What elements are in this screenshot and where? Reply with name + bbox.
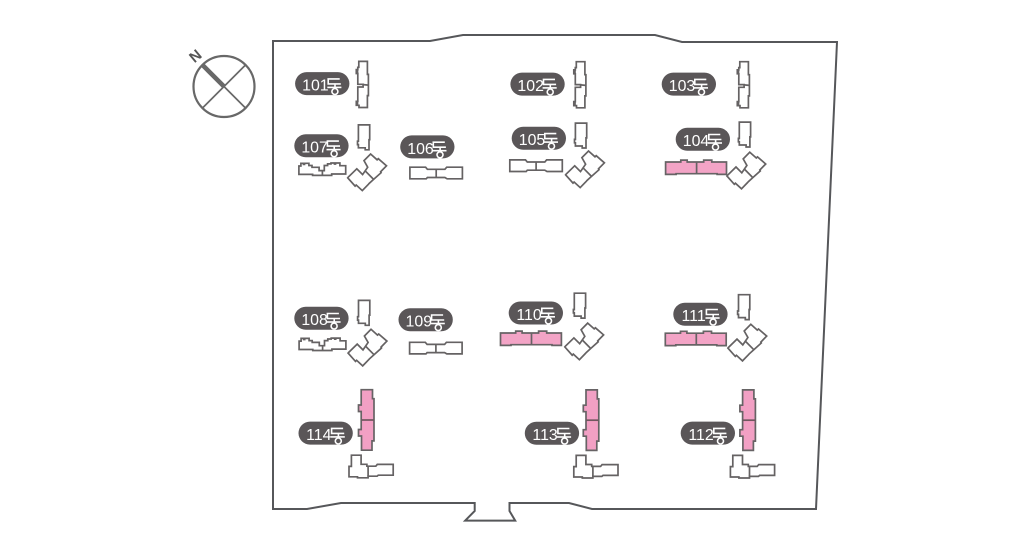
svg-text:104: 104 [683, 133, 710, 150]
svg-text:102: 102 [517, 78, 544, 95]
svg-text:107: 107 [301, 140, 328, 157]
svg-text:106: 106 [407, 141, 434, 158]
svg-text:112: 112 [688, 427, 713, 444]
svg-text:103: 103 [669, 78, 696, 95]
svg-text:110: 110 [516, 307, 541, 324]
svg-text:114: 114 [306, 427, 331, 444]
svg-text:101: 101 [302, 78, 329, 95]
svg-text:113: 113 [532, 427, 557, 444]
svg-text:109: 109 [406, 314, 433, 331]
svg-text:108: 108 [301, 312, 328, 329]
svg-text:105: 105 [519, 132, 546, 149]
svg-text:111: 111 [682, 308, 706, 325]
